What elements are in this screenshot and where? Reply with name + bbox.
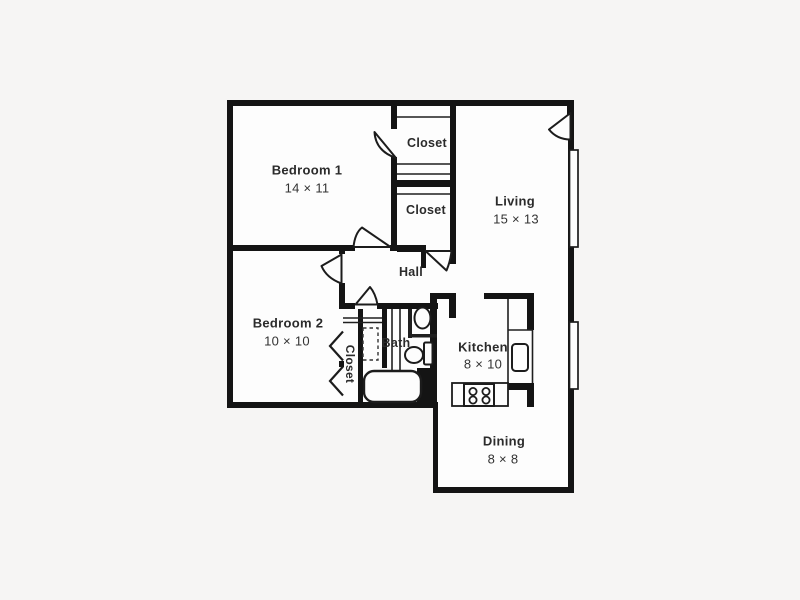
dining-window — [570, 322, 579, 389]
wall-bath-north-right — [377, 303, 438, 309]
wall-nook-east — [382, 309, 387, 368]
wall-hall-closet-south — [397, 245, 421, 252]
wall-kitchen-north-left — [430, 293, 456, 299]
closet3-bifold-nub — [339, 361, 344, 367]
wall-north — [227, 100, 573, 106]
bath-sink — [415, 308, 431, 329]
wall-bedroom1-south — [227, 245, 355, 251]
wall-bath-north-left — [339, 303, 355, 309]
wall-kitchen-southeast — [527, 383, 534, 407]
floor-plan-drawing — [0, 0, 800, 600]
wall-closet-east — [450, 105, 456, 264]
wall-closet-west-upper — [391, 105, 397, 129]
wall-closet-divider — [397, 180, 450, 187]
wall-west-dining — [433, 402, 438, 493]
wall-bedroom2-east-bottom — [339, 283, 345, 304]
wall-closet-west-lower — [391, 157, 397, 250]
wall-bedroom2-east-top — [339, 251, 345, 254]
refrigerator — [512, 344, 528, 371]
bath-toilet — [405, 347, 423, 363]
toilet-niche-wall — [408, 309, 412, 338]
floor-plan: Bedroom 1 14 × 11 Closet Living 15 × 13 … — [0, 0, 800, 600]
toilet-tank — [424, 343, 433, 365]
bathtub — [364, 371, 421, 402]
wall-south-dining — [433, 487, 574, 493]
wall-kitchen-east-upper — [527, 299, 534, 330]
toilet-niche-divider — [411, 334, 437, 338]
living-window — [570, 150, 579, 247]
kitchen-entry-stub — [449, 299, 456, 318]
wall-west — [227, 100, 233, 408]
wall-kitchen-north-right — [484, 293, 534, 299]
hall-closet-jamb-left — [421, 245, 426, 268]
